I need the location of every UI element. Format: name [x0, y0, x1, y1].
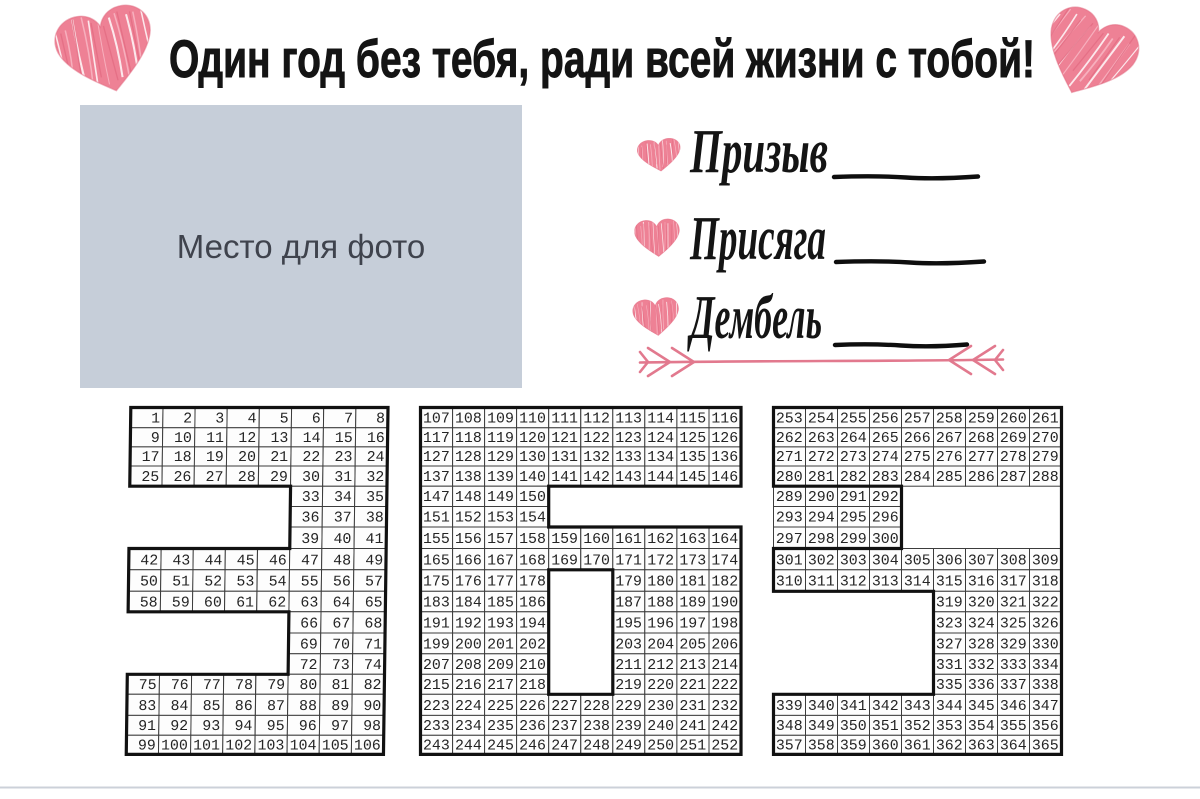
svg-text:78: 78	[235, 678, 253, 694]
svg-text:297: 297	[776, 532, 803, 548]
svg-text:6: 6	[312, 412, 321, 428]
svg-text:67: 67	[332, 617, 350, 633]
svg-text:125: 125	[679, 431, 706, 447]
svg-text:212: 212	[647, 658, 674, 674]
svg-text:181: 181	[679, 575, 706, 591]
svg-text:Призыв: Призыв	[689, 118, 828, 186]
svg-text:27: 27	[205, 470, 223, 486]
svg-text:252: 252	[711, 738, 738, 754]
svg-text:146: 146	[711, 470, 738, 486]
svg-text:87: 87	[267, 699, 285, 715]
svg-text:228: 228	[583, 699, 610, 715]
svg-text:63: 63	[300, 596, 318, 612]
svg-text:279: 279	[1032, 450, 1059, 466]
svg-text:25: 25	[141, 470, 159, 486]
svg-text:201: 201	[487, 637, 514, 653]
svg-text:318: 318	[1032, 575, 1059, 591]
svg-text:153: 153	[487, 511, 514, 527]
svg-text:118: 118	[455, 431, 482, 447]
svg-text:219: 219	[615, 678, 642, 694]
svg-text:111: 111	[551, 412, 578, 428]
svg-text:300: 300	[872, 532, 899, 548]
svg-text:5: 5	[280, 412, 289, 428]
svg-text:233: 233	[423, 719, 450, 735]
svg-text:346: 346	[1000, 699, 1027, 715]
svg-text:242: 242	[711, 719, 738, 735]
svg-text:248: 248	[583, 738, 610, 754]
svg-text:95: 95	[267, 719, 285, 735]
svg-text:167: 167	[487, 553, 514, 569]
svg-text:4: 4	[247, 412, 256, 428]
svg-text:1: 1	[151, 412, 160, 428]
svg-text:24: 24	[367, 450, 385, 466]
svg-text:347: 347	[1032, 699, 1059, 715]
svg-text:282: 282	[840, 470, 867, 486]
svg-text:131: 131	[551, 450, 578, 466]
svg-text:145: 145	[679, 470, 706, 486]
svg-text:161: 161	[615, 532, 642, 548]
svg-text:53: 53	[236, 575, 254, 591]
svg-text:89: 89	[331, 699, 349, 715]
svg-text:110: 110	[519, 412, 546, 428]
svg-text:206: 206	[711, 637, 738, 653]
svg-text:221: 221	[679, 678, 706, 694]
svg-text:276: 276	[936, 450, 963, 466]
svg-text:164: 164	[711, 532, 738, 548]
svg-text:186: 186	[519, 596, 546, 612]
svg-text:168: 168	[519, 553, 546, 569]
svg-text:200: 200	[455, 637, 482, 653]
svg-text:100: 100	[161, 738, 188, 754]
svg-text:69: 69	[300, 637, 318, 653]
svg-text:216: 216	[455, 678, 482, 694]
svg-text:267: 267	[936, 431, 963, 447]
svg-text:43: 43	[172, 553, 190, 569]
svg-text:136: 136	[711, 450, 738, 466]
svg-text:162: 162	[647, 532, 674, 548]
svg-text:159: 159	[551, 532, 578, 548]
svg-text:265: 265	[872, 431, 899, 447]
svg-text:299: 299	[840, 532, 867, 548]
svg-text:334: 334	[1032, 658, 1059, 674]
svg-text:304: 304	[872, 553, 899, 569]
svg-text:3: 3	[215, 412, 224, 428]
svg-text:264: 264	[840, 431, 867, 447]
svg-text:226: 226	[519, 699, 546, 715]
svg-text:105: 105	[322, 738, 349, 754]
svg-text:54: 54	[269, 575, 287, 591]
svg-text:292: 292	[872, 490, 899, 506]
svg-text:61: 61	[236, 596, 254, 612]
svg-text:152: 152	[455, 511, 482, 527]
svg-text:55: 55	[301, 575, 319, 591]
svg-text:47: 47	[301, 553, 319, 569]
svg-text:65: 65	[365, 596, 383, 612]
svg-text:94: 94	[234, 719, 252, 735]
svg-text:320: 320	[968, 596, 995, 612]
svg-text:92: 92	[170, 719, 188, 735]
svg-text:291: 291	[840, 490, 867, 506]
svg-text:56: 56	[333, 575, 351, 591]
svg-text:220: 220	[647, 678, 674, 694]
svg-text:23: 23	[334, 450, 352, 466]
svg-text:77: 77	[203, 678, 221, 694]
svg-text:225: 225	[487, 699, 514, 715]
svg-text:254: 254	[808, 412, 835, 428]
svg-text:273: 273	[840, 450, 867, 466]
svg-text:311: 311	[808, 575, 835, 591]
svg-text:123: 123	[615, 431, 642, 447]
svg-text:17: 17	[142, 450, 160, 466]
svg-text:288: 288	[1032, 470, 1059, 486]
svg-text:64: 64	[333, 596, 351, 612]
svg-text:214: 214	[711, 658, 738, 674]
svg-text:328: 328	[968, 637, 995, 653]
svg-text:171: 171	[615, 553, 642, 569]
svg-text:70: 70	[332, 637, 350, 653]
svg-text:99: 99	[138, 738, 156, 754]
svg-text:244: 244	[455, 738, 482, 754]
svg-text:241: 241	[679, 719, 706, 735]
svg-text:73: 73	[332, 658, 350, 674]
svg-text:303: 303	[840, 553, 867, 569]
svg-text:322: 322	[1032, 596, 1059, 612]
svg-text:296: 296	[872, 511, 899, 527]
svg-text:Дембель: Дембель	[687, 284, 822, 352]
svg-text:71: 71	[364, 637, 382, 653]
svg-text:261: 261	[1032, 412, 1059, 428]
svg-text:130: 130	[519, 450, 546, 466]
svg-text:319: 319	[936, 596, 963, 612]
svg-text:256: 256	[872, 412, 899, 428]
svg-text:271: 271	[776, 450, 803, 466]
svg-text:45: 45	[237, 553, 255, 569]
svg-text:286: 286	[968, 470, 995, 486]
svg-text:298: 298	[808, 532, 835, 548]
svg-text:174: 174	[711, 553, 738, 569]
svg-text:358: 358	[808, 738, 835, 754]
svg-text:165: 165	[423, 553, 450, 569]
svg-text:245: 245	[487, 738, 514, 754]
svg-text:301: 301	[776, 553, 803, 569]
svg-text:122: 122	[583, 431, 610, 447]
svg-text:208: 208	[455, 658, 482, 674]
svg-text:222: 222	[711, 678, 738, 694]
svg-text:169: 169	[551, 553, 578, 569]
svg-text:349: 349	[808, 719, 835, 735]
svg-text:103: 103	[257, 738, 284, 754]
svg-text:104: 104	[290, 738, 317, 754]
svg-text:112: 112	[583, 412, 610, 428]
svg-text:207: 207	[423, 658, 450, 674]
svg-text:287: 287	[1000, 470, 1027, 486]
svg-text:309: 309	[1032, 553, 1059, 569]
svg-text:30: 30	[302, 470, 320, 486]
svg-text:196: 196	[647, 617, 674, 633]
svg-text:106: 106	[354, 738, 381, 754]
svg-text:189: 189	[679, 596, 706, 612]
svg-text:155: 155	[423, 532, 450, 548]
svg-text:312: 312	[840, 575, 867, 591]
svg-text:84: 84	[170, 699, 188, 715]
svg-text:354: 354	[968, 719, 995, 735]
svg-text:113: 113	[615, 412, 642, 428]
svg-text:263: 263	[808, 431, 835, 447]
svg-text:249: 249	[615, 738, 642, 754]
svg-text:178: 178	[519, 575, 546, 591]
svg-text:13: 13	[270, 431, 288, 447]
svg-text:58: 58	[140, 596, 158, 612]
svg-text:101: 101	[193, 738, 220, 754]
svg-text:128: 128	[455, 450, 482, 466]
svg-text:326: 326	[1032, 617, 1059, 633]
svg-text:255: 255	[840, 412, 867, 428]
svg-text:75: 75	[139, 678, 157, 694]
svg-text:342: 342	[872, 699, 899, 715]
svg-text:330: 330	[1032, 637, 1059, 653]
svg-text:360: 360	[872, 738, 899, 754]
svg-text:180: 180	[647, 575, 674, 591]
svg-text:315: 315	[936, 575, 963, 591]
svg-text:198: 198	[711, 617, 738, 633]
svg-text:327: 327	[936, 637, 963, 653]
svg-text:197: 197	[679, 617, 706, 633]
svg-text:344: 344	[936, 699, 963, 715]
svg-text:109: 109	[487, 412, 514, 428]
svg-text:60: 60	[204, 596, 222, 612]
svg-text:97: 97	[331, 719, 349, 735]
svg-text:21: 21	[270, 450, 288, 466]
svg-text:37: 37	[334, 511, 352, 527]
svg-text:147: 147	[423, 490, 450, 506]
svg-text:16: 16	[367, 431, 385, 447]
svg-text:42: 42	[140, 553, 158, 569]
svg-text:175: 175	[423, 575, 450, 591]
svg-text:10: 10	[174, 431, 192, 447]
svg-text:247: 247	[551, 738, 578, 754]
svg-text:364: 364	[1000, 738, 1027, 754]
svg-text:277: 277	[968, 450, 995, 466]
svg-text:127: 127	[423, 450, 450, 466]
svg-text:355: 355	[1000, 719, 1027, 735]
svg-text:149: 149	[487, 490, 514, 506]
svg-text:102: 102	[225, 738, 252, 754]
svg-text:31: 31	[334, 470, 352, 486]
svg-text:257: 257	[904, 412, 931, 428]
svg-text:190: 190	[711, 596, 738, 612]
svg-text:193: 193	[487, 617, 514, 633]
svg-text:203: 203	[615, 637, 642, 653]
svg-text:192: 192	[455, 617, 482, 633]
svg-text:14: 14	[303, 431, 321, 447]
svg-text:157: 157	[487, 532, 514, 548]
svg-text:Присяга: Присяга	[689, 205, 826, 273]
svg-text:341: 341	[840, 699, 867, 715]
svg-text:39: 39	[301, 532, 319, 548]
svg-text:253: 253	[776, 412, 803, 428]
svg-text:154: 154	[519, 511, 546, 527]
svg-text:356: 356	[1032, 719, 1059, 735]
svg-text:86: 86	[235, 699, 253, 715]
svg-text:258: 258	[936, 412, 963, 428]
svg-text:238: 238	[583, 719, 610, 735]
svg-text:119: 119	[487, 431, 514, 447]
svg-text:332: 332	[968, 658, 995, 674]
svg-text:116: 116	[711, 412, 738, 428]
svg-text:227: 227	[551, 699, 578, 715]
svg-text:57: 57	[365, 575, 383, 591]
svg-text:134: 134	[647, 450, 674, 466]
svg-text:79: 79	[267, 678, 285, 694]
svg-text:294: 294	[808, 511, 835, 527]
svg-text:362: 362	[936, 738, 963, 754]
svg-text:148: 148	[455, 490, 482, 506]
svg-text:353: 353	[936, 719, 963, 735]
svg-text:177: 177	[487, 575, 514, 591]
svg-text:19: 19	[206, 450, 224, 466]
svg-text:172: 172	[647, 553, 674, 569]
svg-text:283: 283	[872, 470, 899, 486]
svg-text:365: 365	[1032, 738, 1059, 754]
svg-text:251: 251	[679, 738, 706, 754]
svg-text:121: 121	[551, 431, 578, 447]
svg-text:310: 310	[776, 575, 803, 591]
svg-text:96: 96	[299, 719, 317, 735]
svg-text:348: 348	[776, 719, 803, 735]
svg-text:7: 7	[344, 412, 353, 428]
svg-text:243: 243	[423, 738, 450, 754]
svg-text:8: 8	[376, 412, 385, 428]
svg-text:357: 357	[776, 738, 803, 754]
svg-text:250: 250	[647, 738, 674, 754]
svg-text:269: 269	[1000, 431, 1027, 447]
svg-text:9: 9	[151, 431, 160, 447]
svg-text:117: 117	[423, 431, 450, 447]
svg-text:137: 137	[423, 470, 450, 486]
svg-text:51: 51	[172, 575, 190, 591]
svg-text:59: 59	[172, 596, 190, 612]
svg-text:38: 38	[366, 511, 384, 527]
svg-text:274: 274	[872, 450, 899, 466]
svg-text:11: 11	[206, 431, 224, 447]
svg-text:48: 48	[333, 553, 351, 569]
svg-text:160: 160	[583, 532, 610, 548]
svg-text:33: 33	[302, 490, 320, 506]
svg-text:324: 324	[968, 617, 995, 633]
svg-text:234: 234	[455, 719, 482, 735]
svg-text:308: 308	[1000, 553, 1027, 569]
svg-text:313: 313	[872, 575, 899, 591]
svg-text:280: 280	[776, 470, 803, 486]
svg-text:133: 133	[615, 450, 642, 466]
svg-text:81: 81	[331, 678, 349, 694]
svg-text:Один год без тебя, ради всей ж: Один год без тебя, ради всей жизни с тоб…	[169, 30, 1035, 89]
svg-text:129: 129	[487, 450, 514, 466]
svg-text:179: 179	[615, 575, 642, 591]
svg-text:15: 15	[335, 431, 353, 447]
svg-text:338: 338	[1032, 678, 1059, 694]
svg-text:232: 232	[711, 699, 738, 715]
svg-text:323: 323	[936, 617, 963, 633]
svg-text:185: 185	[487, 596, 514, 612]
svg-text:115: 115	[679, 412, 706, 428]
svg-text:314: 314	[904, 575, 931, 591]
svg-text:305: 305	[904, 553, 931, 569]
svg-text:170: 170	[583, 553, 610, 569]
svg-text:74: 74	[364, 658, 382, 674]
svg-text:138: 138	[455, 470, 482, 486]
svg-text:306: 306	[936, 553, 963, 569]
svg-text:268: 268	[968, 431, 995, 447]
svg-text:32: 32	[366, 470, 384, 486]
svg-text:144: 144	[647, 470, 674, 486]
svg-text:224: 224	[455, 699, 482, 715]
svg-text:29: 29	[270, 470, 288, 486]
svg-text:246: 246	[519, 738, 546, 754]
svg-text:289: 289	[776, 490, 803, 506]
svg-text:352: 352	[904, 719, 931, 735]
svg-text:278: 278	[1000, 450, 1027, 466]
svg-text:359: 359	[840, 738, 867, 754]
svg-text:307: 307	[968, 553, 995, 569]
svg-text:183: 183	[423, 596, 450, 612]
svg-text:35: 35	[366, 490, 384, 506]
svg-text:350: 350	[840, 719, 867, 735]
svg-text:204: 204	[647, 637, 674, 653]
svg-text:275: 275	[904, 450, 931, 466]
svg-text:211: 211	[615, 658, 642, 674]
svg-text:62: 62	[268, 596, 286, 612]
svg-text:139: 139	[487, 470, 514, 486]
svg-text:331: 331	[936, 658, 963, 674]
svg-text:345: 345	[968, 699, 995, 715]
svg-text:176: 176	[455, 575, 482, 591]
svg-text:2: 2	[183, 412, 192, 428]
svg-text:321: 321	[1000, 596, 1027, 612]
svg-text:163: 163	[679, 532, 706, 548]
svg-text:66: 66	[300, 617, 318, 633]
svg-text:82: 82	[364, 678, 382, 694]
svg-text:143: 143	[615, 470, 642, 486]
svg-text:209: 209	[487, 658, 514, 674]
svg-text:83: 83	[138, 699, 156, 715]
svg-text:22: 22	[302, 450, 320, 466]
svg-text:293: 293	[776, 511, 803, 527]
svg-text:262: 262	[776, 431, 803, 447]
svg-text:18: 18	[174, 450, 192, 466]
svg-text:295: 295	[840, 511, 867, 527]
svg-text:108: 108	[455, 412, 482, 428]
svg-text:76: 76	[171, 678, 189, 694]
svg-text:223: 223	[423, 699, 450, 715]
svg-text:337: 337	[1000, 678, 1027, 694]
svg-text:141: 141	[551, 470, 578, 486]
svg-text:229: 229	[615, 699, 642, 715]
svg-text:195: 195	[615, 617, 642, 633]
svg-text:259: 259	[968, 412, 995, 428]
svg-text:240: 240	[647, 719, 674, 735]
svg-text:126: 126	[711, 431, 738, 447]
svg-text:142: 142	[583, 470, 610, 486]
svg-text:215: 215	[423, 678, 450, 694]
svg-text:107: 107	[423, 412, 450, 428]
svg-text:46: 46	[269, 553, 287, 569]
svg-text:88: 88	[299, 699, 317, 715]
svg-text:135: 135	[679, 450, 706, 466]
svg-text:290: 290	[808, 490, 835, 506]
svg-text:68: 68	[364, 617, 382, 633]
svg-text:114: 114	[647, 412, 674, 428]
